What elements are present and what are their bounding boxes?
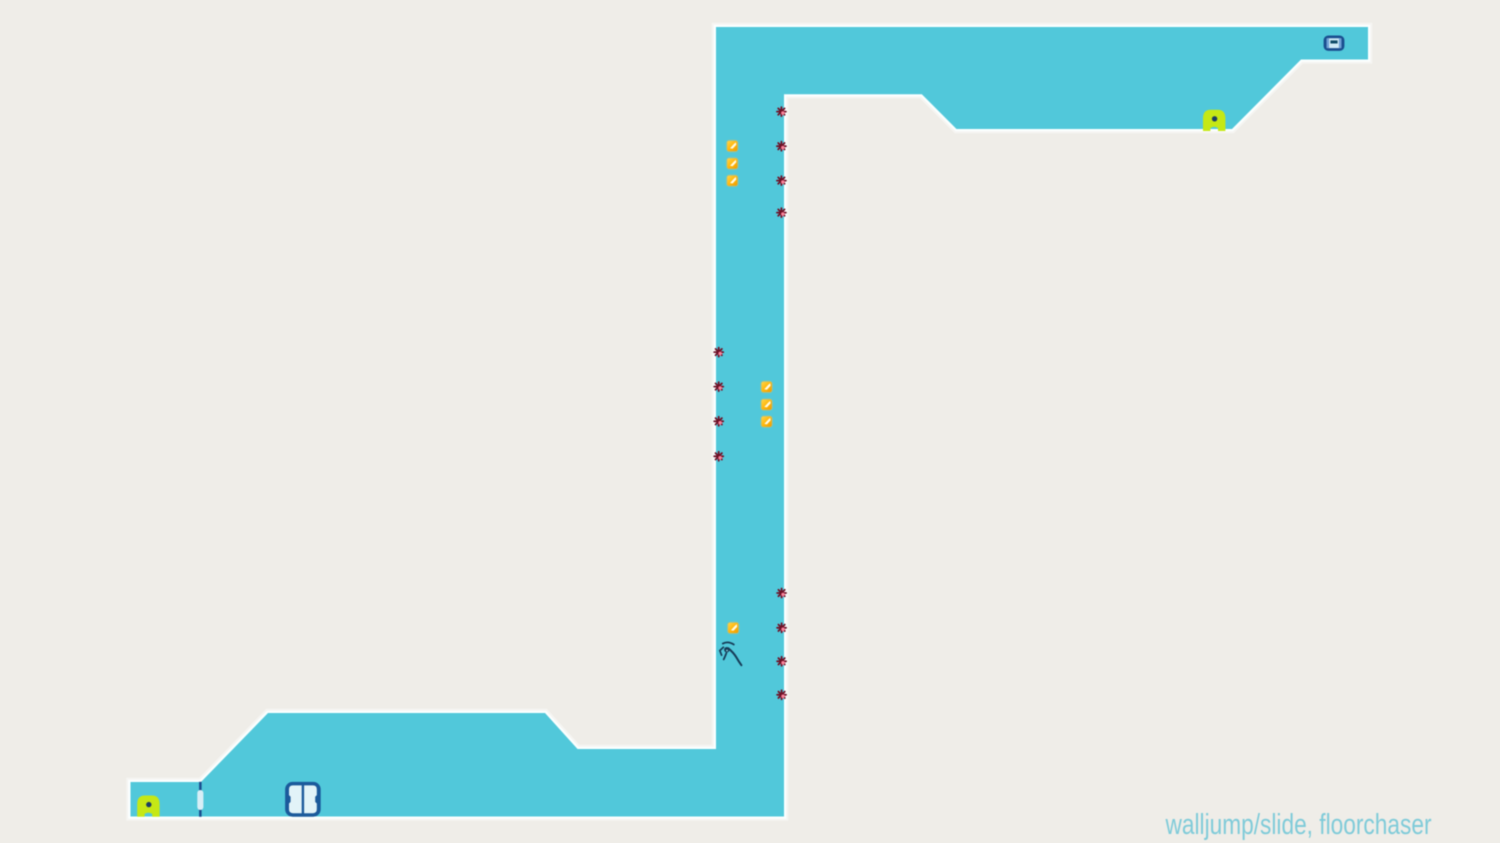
svg-text:walljump/slide, floorchaser: walljump/slide, floorchaser [1165,809,1432,841]
